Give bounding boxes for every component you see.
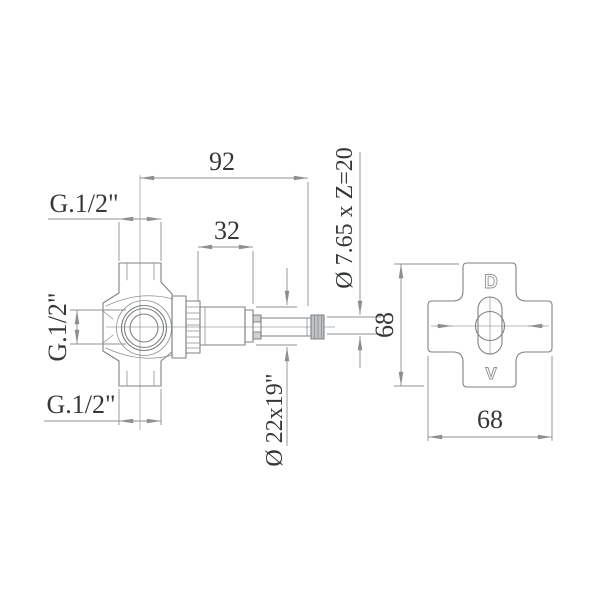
dim-68-width-label: 68: [477, 405, 503, 434]
side-view: 92 32 G.1/2" G.1/2": [43, 147, 381, 467]
thread-center-label: G.1/2": [43, 292, 72, 361]
dim-spline-label: Ø 7.65 x Z=20: [332, 147, 358, 289]
retaining-clip-top: [253, 315, 261, 322]
thread-top-label: G.1/2": [49, 189, 118, 218]
dim-92-label: 92: [209, 147, 235, 176]
dim-68-height-label: 68: [370, 312, 399, 338]
knurl-lines: [187, 307, 199, 348]
dim-thread-bottom: G.1/2": [44, 389, 161, 425]
port-boss: [117, 301, 172, 356]
dim-cartridge-length: 32: [198, 216, 253, 304]
valve-technical-drawing: 92 32 G.1/2" G.1/2": [0, 0, 600, 600]
spline-tip: [311, 315, 324, 339]
technical-drawing-page: 92 32 G.1/2" G.1/2": [0, 0, 600, 600]
front-view: D V 68 68: [370, 263, 552, 441]
dim-thread-top: G.1/2": [48, 189, 161, 261]
dim-22x19-label: Ø 22x19": [262, 373, 288, 466]
cartridge: [200, 307, 261, 345]
dim-32-label: 32: [214, 216, 240, 245]
valve-body: [103, 263, 173, 386]
retaining-clip-bottom: [253, 332, 261, 339]
dim-plate-height: 68: [370, 264, 459, 386]
port-letter-v: V: [485, 364, 497, 383]
dim-stem-diameter: Ø 22x19": [256, 268, 297, 467]
thread-bottom-label: G.1/2": [46, 390, 115, 419]
port-letter-d: D: [484, 272, 498, 293]
